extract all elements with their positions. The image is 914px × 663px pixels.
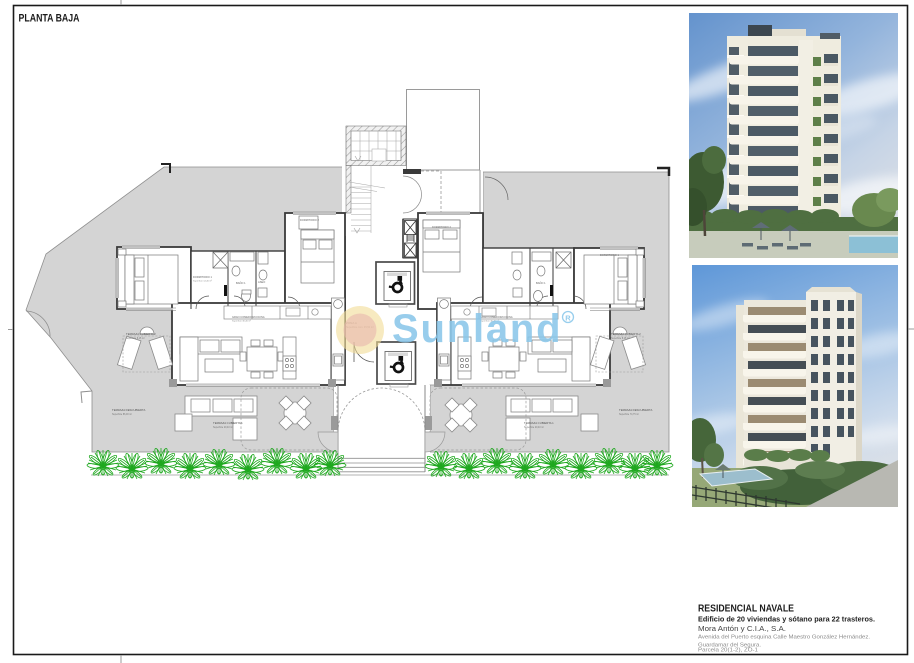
svg-text:DORMITORIO 2: DORMITORIO 2 <box>432 225 452 229</box>
svg-text:Superficie 14,40 m²: Superficie 14,40 m² <box>193 280 212 283</box>
svg-text:PLANTA BAJA: PLANTA BAJA <box>19 13 80 25</box>
svg-text:DORMITORIO 1: DORMITORIO 1 <box>600 253 620 257</box>
svg-text:TERRAZA CUBIERTA 2: TERRAZA CUBIERTA 2 <box>611 332 641 336</box>
svg-text:Parcela 20(1-2), ZO-1: Parcela 20(1-2), ZO-1 <box>698 648 758 654</box>
svg-text:Avenida del Puerto esquina Cal: Avenida del Puerto esquina Calle Maestro… <box>698 635 871 641</box>
svg-text:Superficie 20,40 m²: Superficie 20,40 m² <box>524 426 544 429</box>
svg-text:Superficie 8,15 m²: Superficie 8,15 m² <box>126 337 145 340</box>
svg-text:Mora Antón y C.I.A., S.A.: Mora Antón y C.I.A., S.A. <box>698 624 786 633</box>
svg-text:Superficie 74,75 m²: Superficie 74,75 m² <box>619 413 639 416</box>
svg-text:Sunland: Sunland <box>392 307 562 351</box>
svg-text:TERRAZA CUBIERTA 2: TERRAZA CUBIERTA 2 <box>126 332 156 336</box>
svg-text:GRAN COMEDOR/COCINA: GRAN COMEDOR/COCINA <box>232 315 265 319</box>
svg-text:Superficie 86,00 m²: Superficie 86,00 m² <box>112 413 132 416</box>
svg-text:Edificio de 20 viviendas y sót: Edificio de 20 viviendas y sótano para 2… <box>698 617 875 624</box>
svg-text:TERRAZA CUBIERTA 1: TERRAZA CUBIERTA 1 <box>213 421 243 425</box>
svg-text:TERRAZA CUBIERTA 1: TERRAZA CUBIERTA 1 <box>524 421 554 425</box>
svg-text:DORMITORIO 1: DORMITORIO 1 <box>193 275 213 279</box>
svg-text:TERRAZA DESCUBIERTA: TERRAZA DESCUBIERTA <box>112 408 145 412</box>
svg-text:TERRAZA DESCUBIERTA: TERRAZA DESCUBIERTA <box>619 408 652 412</box>
svg-text:R: R <box>565 314 571 323</box>
svg-text:Superficie 30,40 m²: Superficie 30,40 m² <box>232 320 251 323</box>
svg-text:ASEO: ASEO <box>258 280 265 284</box>
svg-text:RESIDENCIAL NAVALE: RESIDENCIAL NAVALE <box>698 603 794 615</box>
svg-text:Superficie 8,15 m²: Superficie 8,15 m² <box>611 337 630 340</box>
svg-text:Superficie 20,40 m²: Superficie 20,40 m² <box>213 426 233 429</box>
svg-text:DORMITORIO 2: DORMITORIO 2 <box>300 218 320 222</box>
